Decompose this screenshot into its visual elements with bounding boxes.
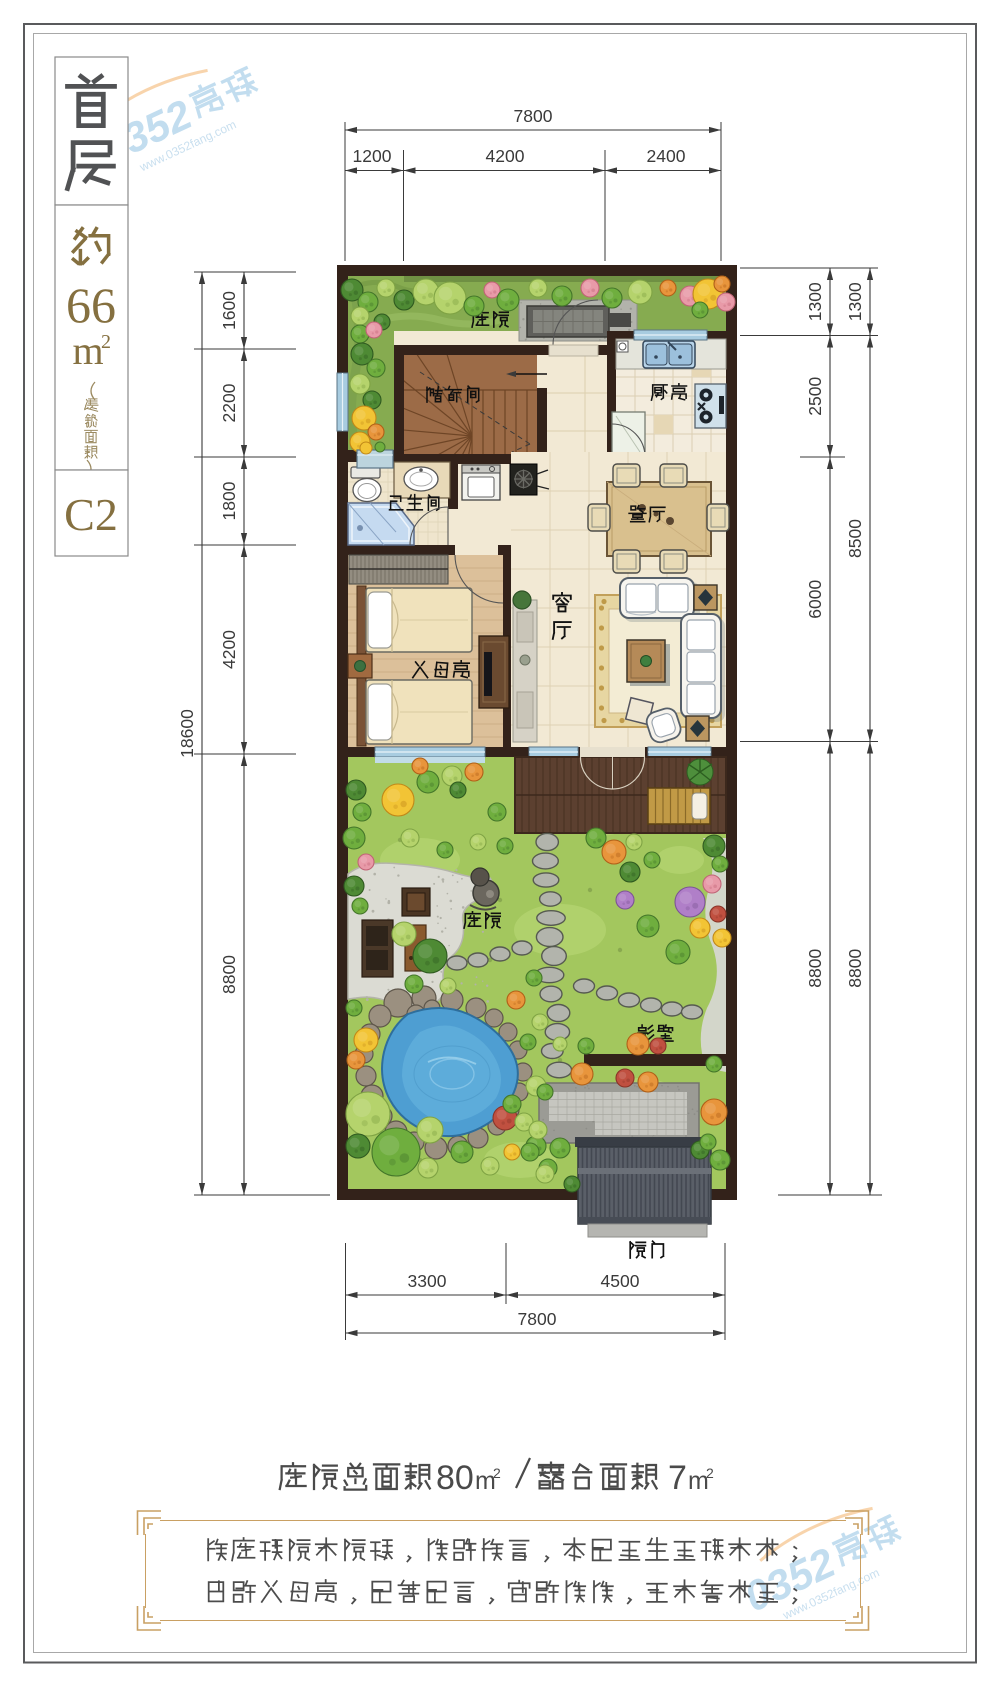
svg-text:8800: 8800 <box>219 955 239 994</box>
svg-text:6000: 6000 <box>805 580 825 619</box>
svg-text:1200: 1200 <box>353 146 392 166</box>
svg-text:8500: 8500 <box>845 519 865 558</box>
svg-text:3300: 3300 <box>408 1271 447 1291</box>
svg-text:4200: 4200 <box>219 630 239 669</box>
svg-text:2200: 2200 <box>219 383 239 422</box>
svg-text:80: 80 <box>436 1459 474 1497</box>
svg-text:1600: 1600 <box>219 291 239 330</box>
svg-text:18600: 18600 <box>177 709 197 758</box>
svg-text:7: 7 <box>668 1459 687 1497</box>
svg-text:4500: 4500 <box>601 1271 640 1291</box>
svg-text:m: m <box>72 328 103 373</box>
svg-text:8800: 8800 <box>845 949 865 988</box>
svg-text:2: 2 <box>101 331 111 353</box>
svg-text:2: 2 <box>706 1465 714 1481</box>
svg-text:2500: 2500 <box>805 377 825 416</box>
svg-text:8800: 8800 <box>805 949 825 988</box>
svg-text:1300: 1300 <box>845 282 865 321</box>
svg-text:4200: 4200 <box>486 146 525 166</box>
svg-text:7800: 7800 <box>518 1309 557 1329</box>
svg-text:2400: 2400 <box>647 146 686 166</box>
svg-text:7800: 7800 <box>514 106 553 126</box>
svg-text:66: 66 <box>66 277 116 333</box>
svg-text:1800: 1800 <box>219 481 239 520</box>
svg-text:1300: 1300 <box>805 282 825 321</box>
svg-text:C2: C2 <box>64 489 118 540</box>
svg-text:2: 2 <box>493 1465 501 1481</box>
